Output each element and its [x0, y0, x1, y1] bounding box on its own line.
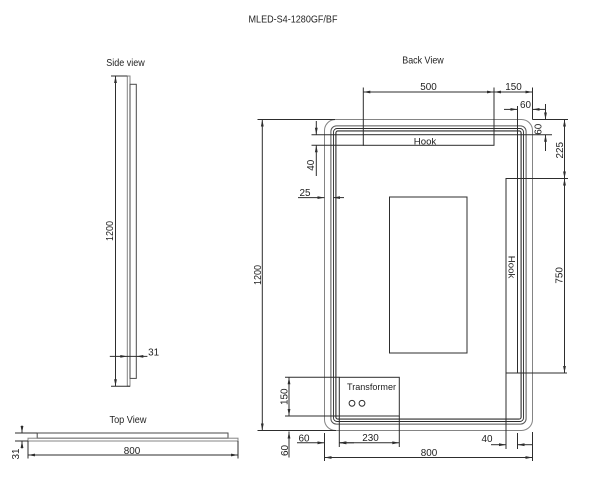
svg-text:Top View: Top View [110, 414, 147, 426]
svg-text:1200: 1200 [105, 221, 116, 241]
svg-text:31: 31 [11, 448, 22, 459]
svg-text:60: 60 [534, 123, 545, 134]
svg-text:MLED-S4-1280GF/BF: MLED-S4-1280GF/BF [249, 13, 338, 25]
svg-text:150: 150 [505, 82, 522, 93]
svg-text:25: 25 [300, 188, 311, 199]
svg-text:500: 500 [420, 82, 437, 93]
svg-text:40: 40 [482, 434, 493, 445]
svg-text:60: 60 [280, 445, 291, 456]
svg-text:Transformer: Transformer [347, 382, 397, 393]
svg-text:1200: 1200 [253, 265, 264, 285]
svg-text:31: 31 [148, 348, 159, 359]
svg-text:225: 225 [555, 142, 566, 159]
svg-text:750: 750 [555, 267, 566, 284]
svg-text:800: 800 [124, 446, 141, 457]
svg-text:800: 800 [421, 448, 438, 459]
svg-text:230: 230 [362, 433, 379, 444]
svg-text:150: 150 [279, 388, 290, 405]
svg-text:40: 40 [306, 159, 317, 170]
svg-text:60: 60 [299, 433, 310, 444]
svg-text:Hook: Hook [414, 136, 437, 147]
svg-text:60: 60 [520, 100, 531, 111]
svg-text:Back View: Back View [402, 55, 444, 67]
svg-text:Hook: Hook [505, 256, 516, 279]
svg-text:Side view: Side view [106, 57, 145, 69]
